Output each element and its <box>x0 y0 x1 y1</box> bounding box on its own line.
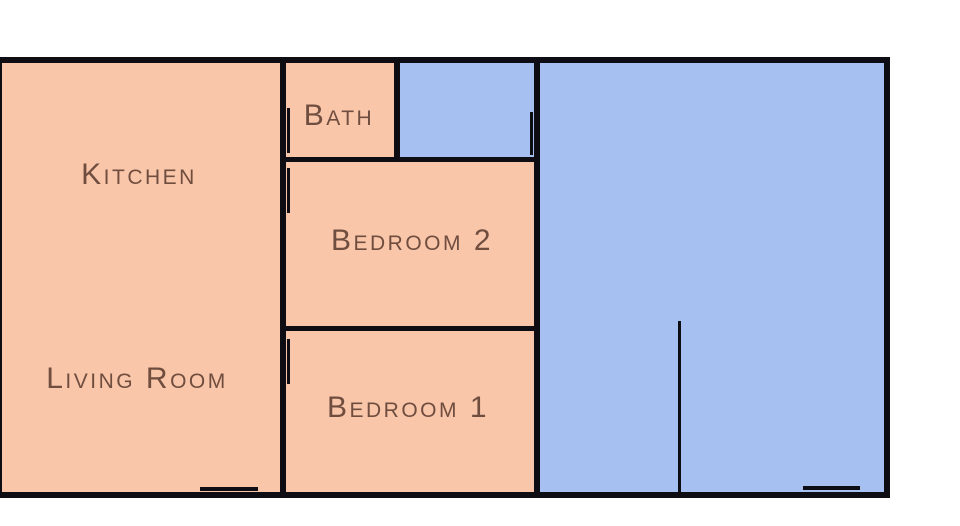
window-marker-large-room <box>803 486 860 490</box>
door-marker-bath <box>287 108 290 153</box>
wall-right <box>884 57 890 498</box>
floor-plan: Kitchen Living Room Bath Bedroom 2 Bedro… <box>0 0 960 526</box>
room-label-bedroom-2: Bedroom 2 <box>331 226 493 256</box>
door-marker-bedroom-2 <box>287 168 290 213</box>
room-label-kitchen: Kitchen <box>81 160 197 190</box>
wall-bath-bottom <box>283 157 540 162</box>
wall-bedroom-divider <box>283 326 540 331</box>
door-marker-bedroom-1 <box>287 339 290 384</box>
room-kitchen-living <box>0 57 283 498</box>
wall-top <box>0 57 890 63</box>
window-marker-living-room <box>200 487 258 491</box>
wall-bottom <box>0 492 890 498</box>
room-label-bath: Bath <box>304 101 374 131</box>
wall-left <box>0 57 2 498</box>
partition-wall-large-room <box>678 321 681 492</box>
wall-kitchen-bedrooms <box>280 57 286 498</box>
door-marker-small-room <box>530 112 533 155</box>
wall-bath-right <box>394 57 400 162</box>
room-large-unlabeled <box>537 57 887 498</box>
room-label-living-room: Living Room <box>46 364 228 394</box>
wall-bedrooms-right <box>534 57 540 498</box>
room-small-unlabeled <box>397 57 537 160</box>
room-label-bedroom-1: Bedroom 1 <box>327 393 489 423</box>
